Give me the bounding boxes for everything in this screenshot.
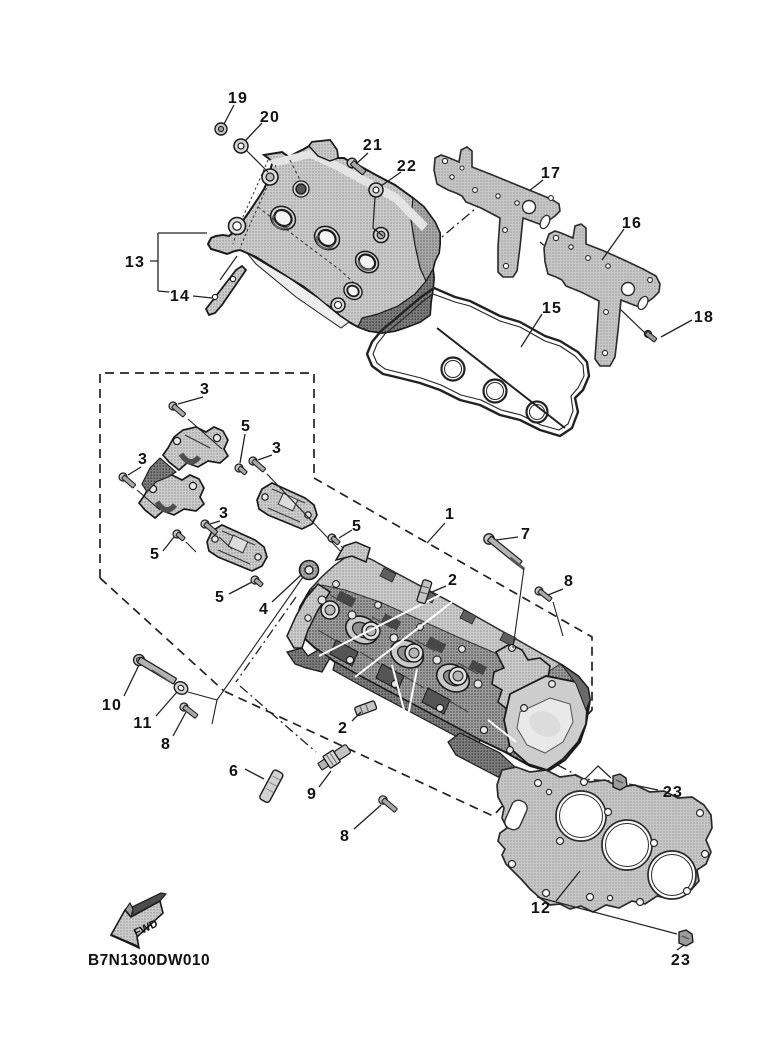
svg-text:23: 23 [663, 784, 683, 801]
svg-text:5: 5 [241, 418, 251, 435]
svg-text:1: 1 [445, 506, 455, 523]
svg-text:18: 18 [694, 309, 714, 326]
svg-text:19: 19 [228, 90, 248, 107]
svg-text:20: 20 [260, 109, 280, 126]
svg-text:3: 3 [138, 451, 148, 468]
svg-text:8: 8 [161, 736, 171, 753]
svg-text:22: 22 [397, 158, 417, 175]
svg-text:3: 3 [272, 440, 282, 457]
svg-text:15: 15 [542, 300, 562, 317]
svg-text:5: 5 [352, 518, 362, 535]
svg-text:8: 8 [340, 828, 350, 845]
svg-text:9: 9 [307, 786, 317, 803]
svg-text:3: 3 [200, 381, 210, 398]
svg-text:7: 7 [521, 526, 531, 543]
svg-text:17: 17 [541, 165, 561, 182]
svg-text:B7N1300DW010: B7N1300DW010 [88, 952, 210, 969]
svg-text:5: 5 [215, 589, 225, 606]
svg-text:16: 16 [622, 215, 642, 232]
svg-text:2: 2 [338, 720, 348, 737]
svg-text:10: 10 [102, 697, 122, 714]
svg-text:3: 3 [219, 505, 229, 522]
svg-text:5: 5 [150, 546, 160, 563]
svg-text:14: 14 [170, 288, 190, 305]
svg-text:13: 13 [125, 254, 145, 271]
svg-text:8: 8 [564, 573, 574, 590]
svg-text:23: 23 [671, 952, 691, 969]
svg-text:2: 2 [448, 572, 458, 589]
svg-text:6: 6 [229, 763, 239, 780]
svg-text:4: 4 [259, 601, 269, 618]
svg-text:12: 12 [531, 900, 551, 917]
svg-text:11: 11 [133, 715, 152, 732]
svg-text:21: 21 [363, 137, 383, 154]
